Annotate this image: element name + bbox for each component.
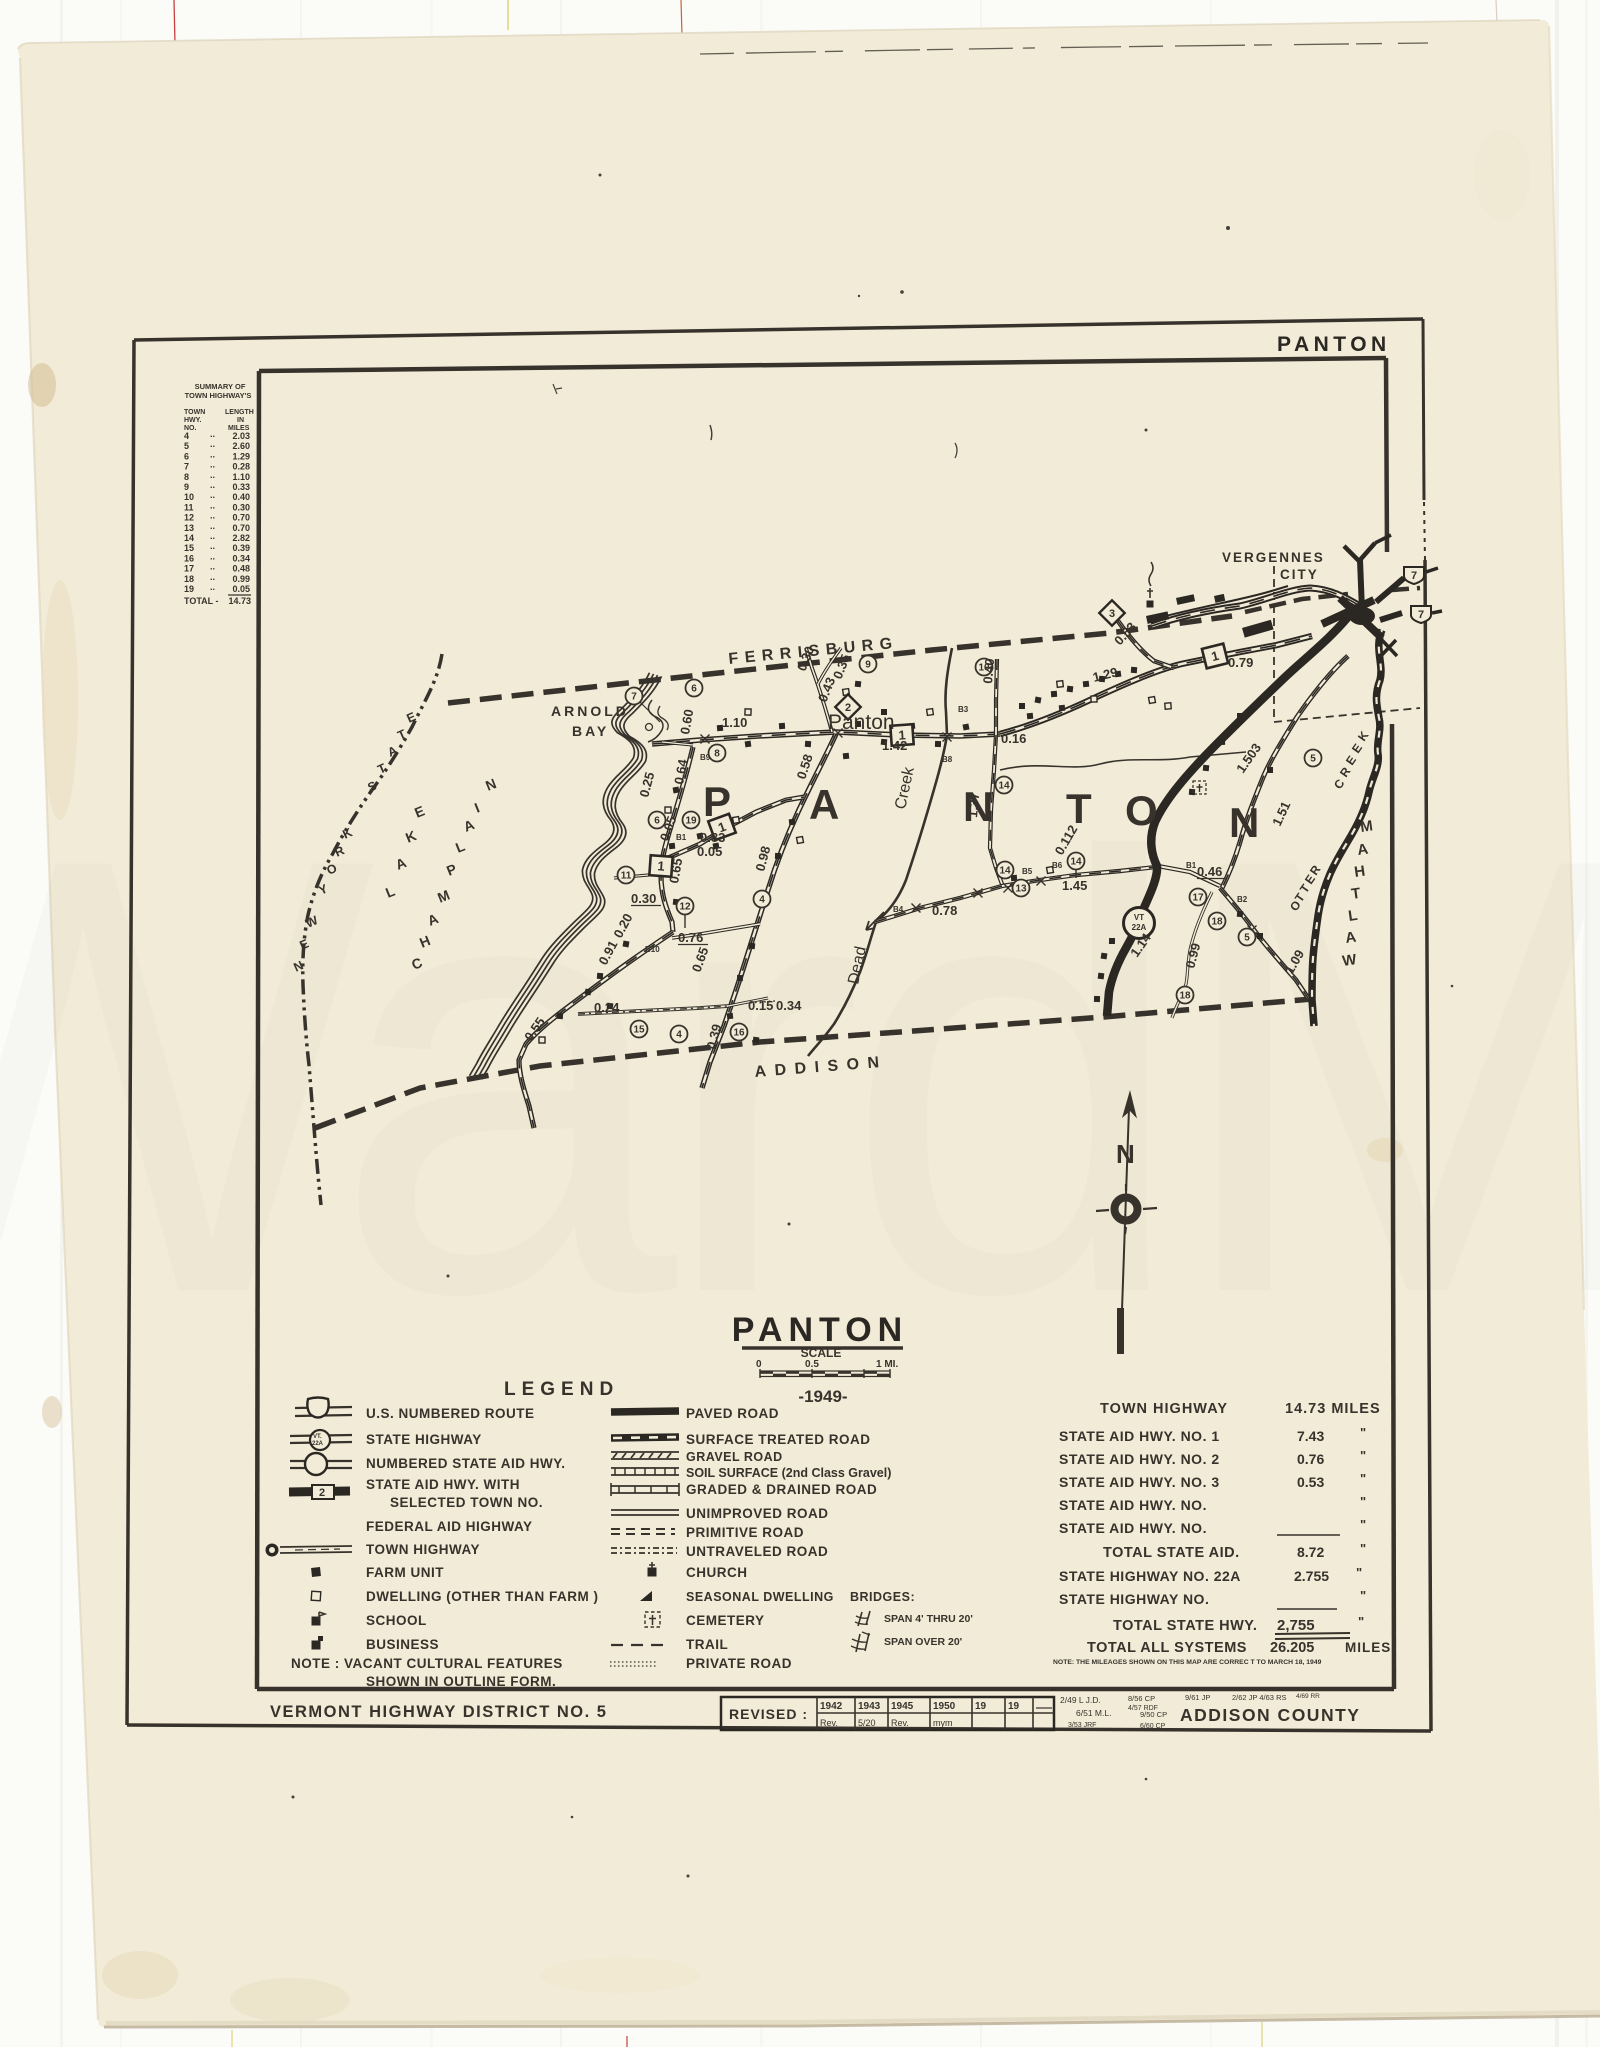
svg-text:REVISED :: REVISED : xyxy=(729,1706,808,1722)
svg-text:..: .. xyxy=(210,582,215,592)
svg-text:SCHOOL: SCHOOL xyxy=(366,1613,427,1628)
svg-text:Rev.: Rev. xyxy=(891,1718,909,1728)
svg-text:0.39: 0.39 xyxy=(232,543,250,553)
svg-text:B8: B8 xyxy=(942,755,953,764)
svg-text:..: .. xyxy=(210,490,215,500)
svg-text:0.70: 0.70 xyxy=(232,523,250,533)
svg-text:0.16: 0.16 xyxy=(1001,731,1026,746)
svg-text:TOTAL -: TOTAL - xyxy=(184,596,219,606)
svg-text:1943: 1943 xyxy=(858,1701,881,1712)
svg-text:mym: mym xyxy=(933,1718,953,1728)
svg-text:TOTAL STATE AID.: TOTAL STATE AID. xyxy=(1103,1545,1240,1561)
svg-text:STATE AID HWY. NO.: STATE AID HWY. NO. xyxy=(1059,1497,1207,1513)
svg-text:1.29: 1.29 xyxy=(232,451,250,461)
svg-text:BUSINESS: BUSINESS xyxy=(366,1637,439,1652)
svg-text:B6: B6 xyxy=(1052,861,1063,870)
svg-text:B10: B10 xyxy=(645,945,660,954)
svg-text:8: 8 xyxy=(714,749,720,760)
svg-text:0.33: 0.33 xyxy=(232,482,250,492)
svg-text:0.30: 0.30 xyxy=(631,891,656,906)
svg-text:26.205: 26.205 xyxy=(1270,1640,1314,1656)
svg-text:0.40: 0.40 xyxy=(232,492,250,502)
svg-text:VERMONT HIGHWAY DISTRICT NO: VERMONT HIGHWAY DISTRICT NO. 5 xyxy=(270,1703,607,1721)
svg-text:NOTE: THE MILEAGES SHOWN O: NOTE: THE MILEAGES SHOWN ON THIS MAP ARE… xyxy=(1053,1659,1322,1666)
svg-text:3/53 JRF: 3/53 JRF xyxy=(1068,1722,1096,1729)
svg-text:..: .. xyxy=(210,562,215,572)
svg-text:16: 16 xyxy=(733,1028,745,1039)
svg-text:22A: 22A xyxy=(312,1441,324,1447)
svg-text:..: .. xyxy=(210,470,215,480)
svg-text:13: 13 xyxy=(1015,884,1027,895)
svg-text:7: 7 xyxy=(184,462,189,472)
svg-text:0.05: 0.05 xyxy=(697,844,722,859)
svg-text:TOTAL ALL SYSTEMS: TOTAL ALL SYSTEMS xyxy=(1087,1640,1247,1656)
svg-text:2/62 JP 4/63 RS: 2/62 JP 4/63 RS xyxy=(1232,1693,1286,1702)
svg-text:6/51 M.L.: 6/51 M.L. xyxy=(1076,1708,1111,1718)
svg-text:DWELLING (OTHER THAN FARM ): DWELLING (OTHER THAN FARM ) xyxy=(366,1589,598,1604)
svg-text:PAVED ROAD: PAVED ROAD xyxy=(686,1406,779,1421)
svg-text:NUMBERED STATE AID HWY.: NUMBERED STATE AID HWY. xyxy=(366,1456,566,1471)
svg-text:0.05: 0.05 xyxy=(232,584,250,594)
svg-text:VT.: VT. xyxy=(313,1434,322,1440)
svg-text:..: .. xyxy=(210,521,215,531)
svg-text:6/60 CP: 6/60 CP xyxy=(1140,1723,1166,1730)
svg-text:0.40: 0.40 xyxy=(980,658,997,685)
svg-text:2.03: 2.03 xyxy=(232,431,250,441)
svg-text:..: .. xyxy=(210,551,215,561)
svg-text:14: 14 xyxy=(998,781,1010,792)
svg-text:1950: 1950 xyxy=(933,1701,956,1712)
svg-text:6: 6 xyxy=(654,816,660,827)
svg-text:0.34: 0.34 xyxy=(776,998,802,1013)
svg-text:": " xyxy=(1360,1448,1366,1463)
svg-text:0.79: 0.79 xyxy=(1228,655,1253,670)
svg-text:0.5: 0.5 xyxy=(805,1359,819,1370)
svg-text:9/50 CP: 9/50 CP xyxy=(1140,1710,1167,1719)
svg-text:CITY: CITY xyxy=(1280,567,1319,582)
svg-text:1.10: 1.10 xyxy=(722,715,747,730)
svg-text:15: 15 xyxy=(633,1025,645,1036)
svg-text:0.76: 0.76 xyxy=(678,930,703,945)
svg-text:1942: 1942 xyxy=(820,1701,843,1712)
svg-text:0.34: 0.34 xyxy=(232,553,250,563)
svg-text:SOIL SURFACE (2nd Class Gravel: SOIL SURFACE (2nd Class Gravel) xyxy=(686,1466,891,1480)
svg-text:7: 7 xyxy=(631,692,637,703)
svg-text:13: 13 xyxy=(184,523,194,533)
svg-text:19: 19 xyxy=(1008,1701,1020,1712)
svg-text:..: .. xyxy=(210,541,215,551)
svg-text:TOWN HIGHWAY: TOWN HIGHWAY xyxy=(366,1542,480,1557)
svg-text:19: 19 xyxy=(975,1701,987,1712)
svg-text:SCALE: SCALE xyxy=(801,1346,842,1360)
svg-text:0: 0 xyxy=(756,1359,762,1370)
svg-text:STATE HIGHWAY NO.: STATE HIGHWAY NO. xyxy=(1059,1591,1209,1607)
svg-text:STATE AID HWY. NO. 3: STATE AID HWY. NO. 3 xyxy=(1059,1474,1220,1490)
svg-text:5: 5 xyxy=(1244,933,1250,944)
svg-text:..: .. xyxy=(210,511,215,521)
svg-text:0.53: 0.53 xyxy=(1297,1474,1324,1490)
svg-text:2/49 L J.D.: 2/49 L J.D. xyxy=(1060,1695,1101,1705)
svg-text:1.42: 1.42 xyxy=(882,738,907,753)
svg-text:2: 2 xyxy=(319,1487,325,1499)
svg-text:STATE AID HWY. NO. 1: STATE AID HWY. NO. 1 xyxy=(1059,1428,1220,1444)
svg-text:7.43: 7.43 xyxy=(1297,1428,1324,1444)
svg-text:4: 4 xyxy=(184,431,189,441)
svg-text:STATE AID HWY. NO.: STATE AID HWY. NO. xyxy=(1059,1520,1207,1536)
svg-text:SPAN OVER 20': SPAN OVER 20' xyxy=(884,1636,962,1648)
svg-text:18: 18 xyxy=(1179,991,1191,1002)
svg-text:9: 9 xyxy=(184,482,189,492)
svg-text:10: 10 xyxy=(184,492,194,502)
svg-text:": " xyxy=(1356,1565,1362,1580)
svg-text:B2: B2 xyxy=(1237,895,1248,904)
svg-text:..: .. xyxy=(210,500,215,510)
svg-text:PANTON: PANTON xyxy=(732,1311,908,1349)
svg-text:CEMETERY: CEMETERY xyxy=(686,1613,765,1628)
svg-text:Panton: Panton xyxy=(828,711,895,734)
svg-text:0.30: 0.30 xyxy=(232,502,250,512)
svg-text:8/56 CP: 8/56 CP xyxy=(1128,1694,1155,1703)
svg-text:STATE HIGHWAY NO. 22A: STATE HIGHWAY NO. 22A xyxy=(1059,1568,1241,1584)
svg-text:9: 9 xyxy=(865,660,871,671)
svg-text:STATE AID HWY. WITH: STATE AID HWY. WITH xyxy=(366,1477,520,1492)
svg-text:1.37: 1.37 xyxy=(965,792,982,819)
svg-text:6: 6 xyxy=(184,451,189,461)
svg-text:TRAIL: TRAIL xyxy=(686,1637,728,1652)
svg-text:PRIMITIVE ROAD: PRIMITIVE ROAD xyxy=(686,1525,804,1540)
svg-text:P: P xyxy=(703,778,731,825)
svg-text:..: .. xyxy=(210,572,215,582)
svg-text:0.78: 0.78 xyxy=(932,903,957,918)
svg-text:5/20: 5/20 xyxy=(858,1718,876,1728)
svg-text:4: 4 xyxy=(759,895,765,906)
svg-text:5: 5 xyxy=(184,441,189,451)
svg-text:N: N xyxy=(1229,799,1259,846)
svg-text:TOWN HIGHWAY: TOWN HIGHWAY xyxy=(1100,1401,1228,1417)
svg-text:ADDISON COUNTY: ADDISON COUNTY xyxy=(1180,1705,1360,1725)
svg-text:..: .. xyxy=(210,449,215,459)
svg-text:B1: B1 xyxy=(1186,861,1197,870)
svg-text:O: O xyxy=(1125,787,1158,834)
svg-text:B5: B5 xyxy=(1022,867,1033,876)
svg-text:6: 6 xyxy=(691,684,697,695)
svg-text:": " xyxy=(1360,1517,1366,1532)
svg-text:-1949-: -1949- xyxy=(798,1387,847,1406)
svg-text:14.73 MILES: 14.73 MILES xyxy=(1285,1401,1381,1417)
svg-text:..: .. xyxy=(210,429,215,439)
svg-text:Rev.: Rev. xyxy=(820,1718,838,1728)
svg-text:N: N xyxy=(1116,1139,1135,1169)
svg-text:18: 18 xyxy=(1211,917,1223,928)
svg-text:5: 5 xyxy=(1310,754,1316,765)
svg-text:11: 11 xyxy=(621,871,632,882)
svg-text:3: 3 xyxy=(1109,608,1115,620)
svg-text:PRIVATE ROAD: PRIVATE ROAD xyxy=(686,1656,792,1671)
svg-text:STATE HIGHWAY: STATE HIGHWAY xyxy=(366,1432,482,1447)
svg-text:IN: IN xyxy=(237,417,244,424)
svg-text:18: 18 xyxy=(184,574,194,584)
svg-text:7: 7 xyxy=(1418,609,1424,621)
svg-text:UNTRAVELED ROAD: UNTRAVELED ROAD xyxy=(686,1544,828,1559)
svg-text:0.48: 0.48 xyxy=(232,564,250,574)
svg-text:ARNOLD: ARNOLD xyxy=(551,703,629,719)
svg-text:VT: VT xyxy=(1134,913,1144,922)
svg-text:1: 1 xyxy=(657,858,665,873)
svg-text:B3: B3 xyxy=(958,705,969,714)
svg-text:0.76: 0.76 xyxy=(1297,1451,1324,1467)
svg-text:2.82: 2.82 xyxy=(232,533,250,543)
svg-text:12: 12 xyxy=(184,513,194,523)
svg-text:7: 7 xyxy=(1411,570,1417,582)
svg-text:4/69 RR: 4/69 RR xyxy=(1296,1693,1320,1700)
svg-text:CHURCH: CHURCH xyxy=(686,1565,748,1580)
svg-text:17: 17 xyxy=(1192,893,1204,904)
svg-text:14: 14 xyxy=(999,866,1011,877)
svg-text:8.72: 8.72 xyxy=(1297,1544,1324,1560)
svg-text:FEDERAL AID HIGHWAY: FEDERAL AID HIGHWAY xyxy=(366,1519,533,1534)
svg-text:GRAVEL ROAD: GRAVEL ROAD xyxy=(686,1450,783,1464)
svg-text:16: 16 xyxy=(184,553,194,563)
svg-text:LEGEND: LEGEND xyxy=(504,1379,619,1400)
svg-text:SURFACE TREATED ROAD: SURFACE TREATED ROAD xyxy=(686,1432,871,1447)
svg-text:2,755: 2,755 xyxy=(1277,1617,1315,1634)
svg-text:TOTAL STATE HWY.: TOTAL STATE HWY. xyxy=(1113,1618,1257,1634)
svg-text:PANTON: PANTON xyxy=(1277,333,1391,356)
svg-text:9/61 JP: 9/61 JP xyxy=(1185,1693,1210,1702)
svg-text:B4: B4 xyxy=(893,905,904,914)
svg-text:1 MI.: 1 MI. xyxy=(876,1359,898,1370)
svg-text:0.99: 0.99 xyxy=(232,574,250,584)
svg-text:0.28: 0.28 xyxy=(232,462,250,472)
svg-text:B9: B9 xyxy=(700,753,711,762)
svg-text:17: 17 xyxy=(184,564,194,574)
svg-text:0.15: 0.15 xyxy=(748,998,773,1013)
svg-text:GRADED & DRAINED ROAD: GRADED & DRAINED ROAD xyxy=(686,1482,877,1497)
svg-text:STATE AID HWY. NO. 2: STATE AID HWY. NO. 2 xyxy=(1059,1451,1220,1467)
svg-text:2.60: 2.60 xyxy=(232,441,250,451)
svg-text:0.24: 0.24 xyxy=(594,1000,620,1015)
svg-text:": " xyxy=(1358,1614,1364,1629)
svg-text:11: 11 xyxy=(184,502,194,512)
svg-text:4: 4 xyxy=(676,1030,682,1041)
svg-text:NOTE : VACANT CULTURAL FEATURE: NOTE : VACANT CULTURAL FEATURES xyxy=(291,1656,563,1671)
svg-text:": " xyxy=(1360,1541,1366,1556)
svg-text:TOWN HIGHWAY'S: TOWN HIGHWAY'S xyxy=(185,391,252,400)
svg-text:14: 14 xyxy=(184,533,194,543)
svg-text:": " xyxy=(1360,1471,1366,1486)
svg-text:A: A xyxy=(809,781,839,828)
svg-text:B1: B1 xyxy=(676,833,687,842)
svg-text:MILES: MILES xyxy=(1345,1640,1391,1655)
svg-text:14: 14 xyxy=(1070,857,1082,868)
svg-text:1.10: 1.10 xyxy=(232,472,250,482)
svg-text:SELECTED TOWN NO.: SELECTED TOWN NO. xyxy=(390,1495,543,1510)
svg-text:BRIDGES:: BRIDGES: xyxy=(850,1590,915,1604)
svg-text:8: 8 xyxy=(184,472,189,482)
svg-text:..: .. xyxy=(210,439,215,449)
svg-text:SPAN 4' THRU 20': SPAN 4' THRU 20' xyxy=(884,1613,973,1625)
svg-text:SEASONAL DWELLING: SEASONAL DWELLING xyxy=(686,1590,834,1604)
svg-text:0.46: 0.46 xyxy=(1197,864,1222,879)
svg-text:U.S. NUMBERED ROUTE: U.S. NUMBERED ROUTE xyxy=(366,1406,535,1421)
svg-text:UNIMPROVED ROAD: UNIMPROVED ROAD xyxy=(686,1506,829,1521)
svg-text:12: 12 xyxy=(679,902,691,913)
svg-text:VERGENNES: VERGENNES xyxy=(1222,550,1325,565)
svg-text:FARM UNIT: FARM UNIT xyxy=(366,1565,444,1580)
svg-text:2.755: 2.755 xyxy=(1294,1568,1329,1584)
svg-text:19: 19 xyxy=(184,584,194,594)
svg-text:SUMMARY OF: SUMMARY OF xyxy=(195,382,246,391)
svg-text:1.45: 1.45 xyxy=(1062,878,1087,893)
svg-text:14.73: 14.73 xyxy=(228,596,251,606)
svg-text:TOWN: TOWN xyxy=(184,409,205,416)
svg-text:": " xyxy=(1360,1588,1366,1603)
svg-text:15: 15 xyxy=(184,543,194,553)
svg-text:19: 19 xyxy=(685,816,697,827)
svg-text:1945: 1945 xyxy=(891,1701,914,1712)
svg-text:BAY: BAY xyxy=(572,723,609,739)
svg-text:22A: 22A xyxy=(1132,923,1147,932)
svg-text:HWY.: HWY. xyxy=(184,417,202,424)
svg-text:..: .. xyxy=(210,480,215,490)
svg-text:": " xyxy=(1360,1494,1366,1509)
svg-text:0.83: 0.83 xyxy=(700,830,725,845)
svg-text:LENGTH: LENGTH xyxy=(225,409,254,416)
svg-text:": " xyxy=(1360,1425,1366,1440)
svg-text:SHOWN IN OUTLINE FORM.: SHOWN IN OUTLINE FORM. xyxy=(366,1674,556,1689)
svg-text:0.70: 0.70 xyxy=(232,513,250,523)
svg-text:M: M xyxy=(1359,817,1374,836)
svg-text:..: .. xyxy=(210,460,215,470)
svg-text:..: .. xyxy=(210,531,215,541)
